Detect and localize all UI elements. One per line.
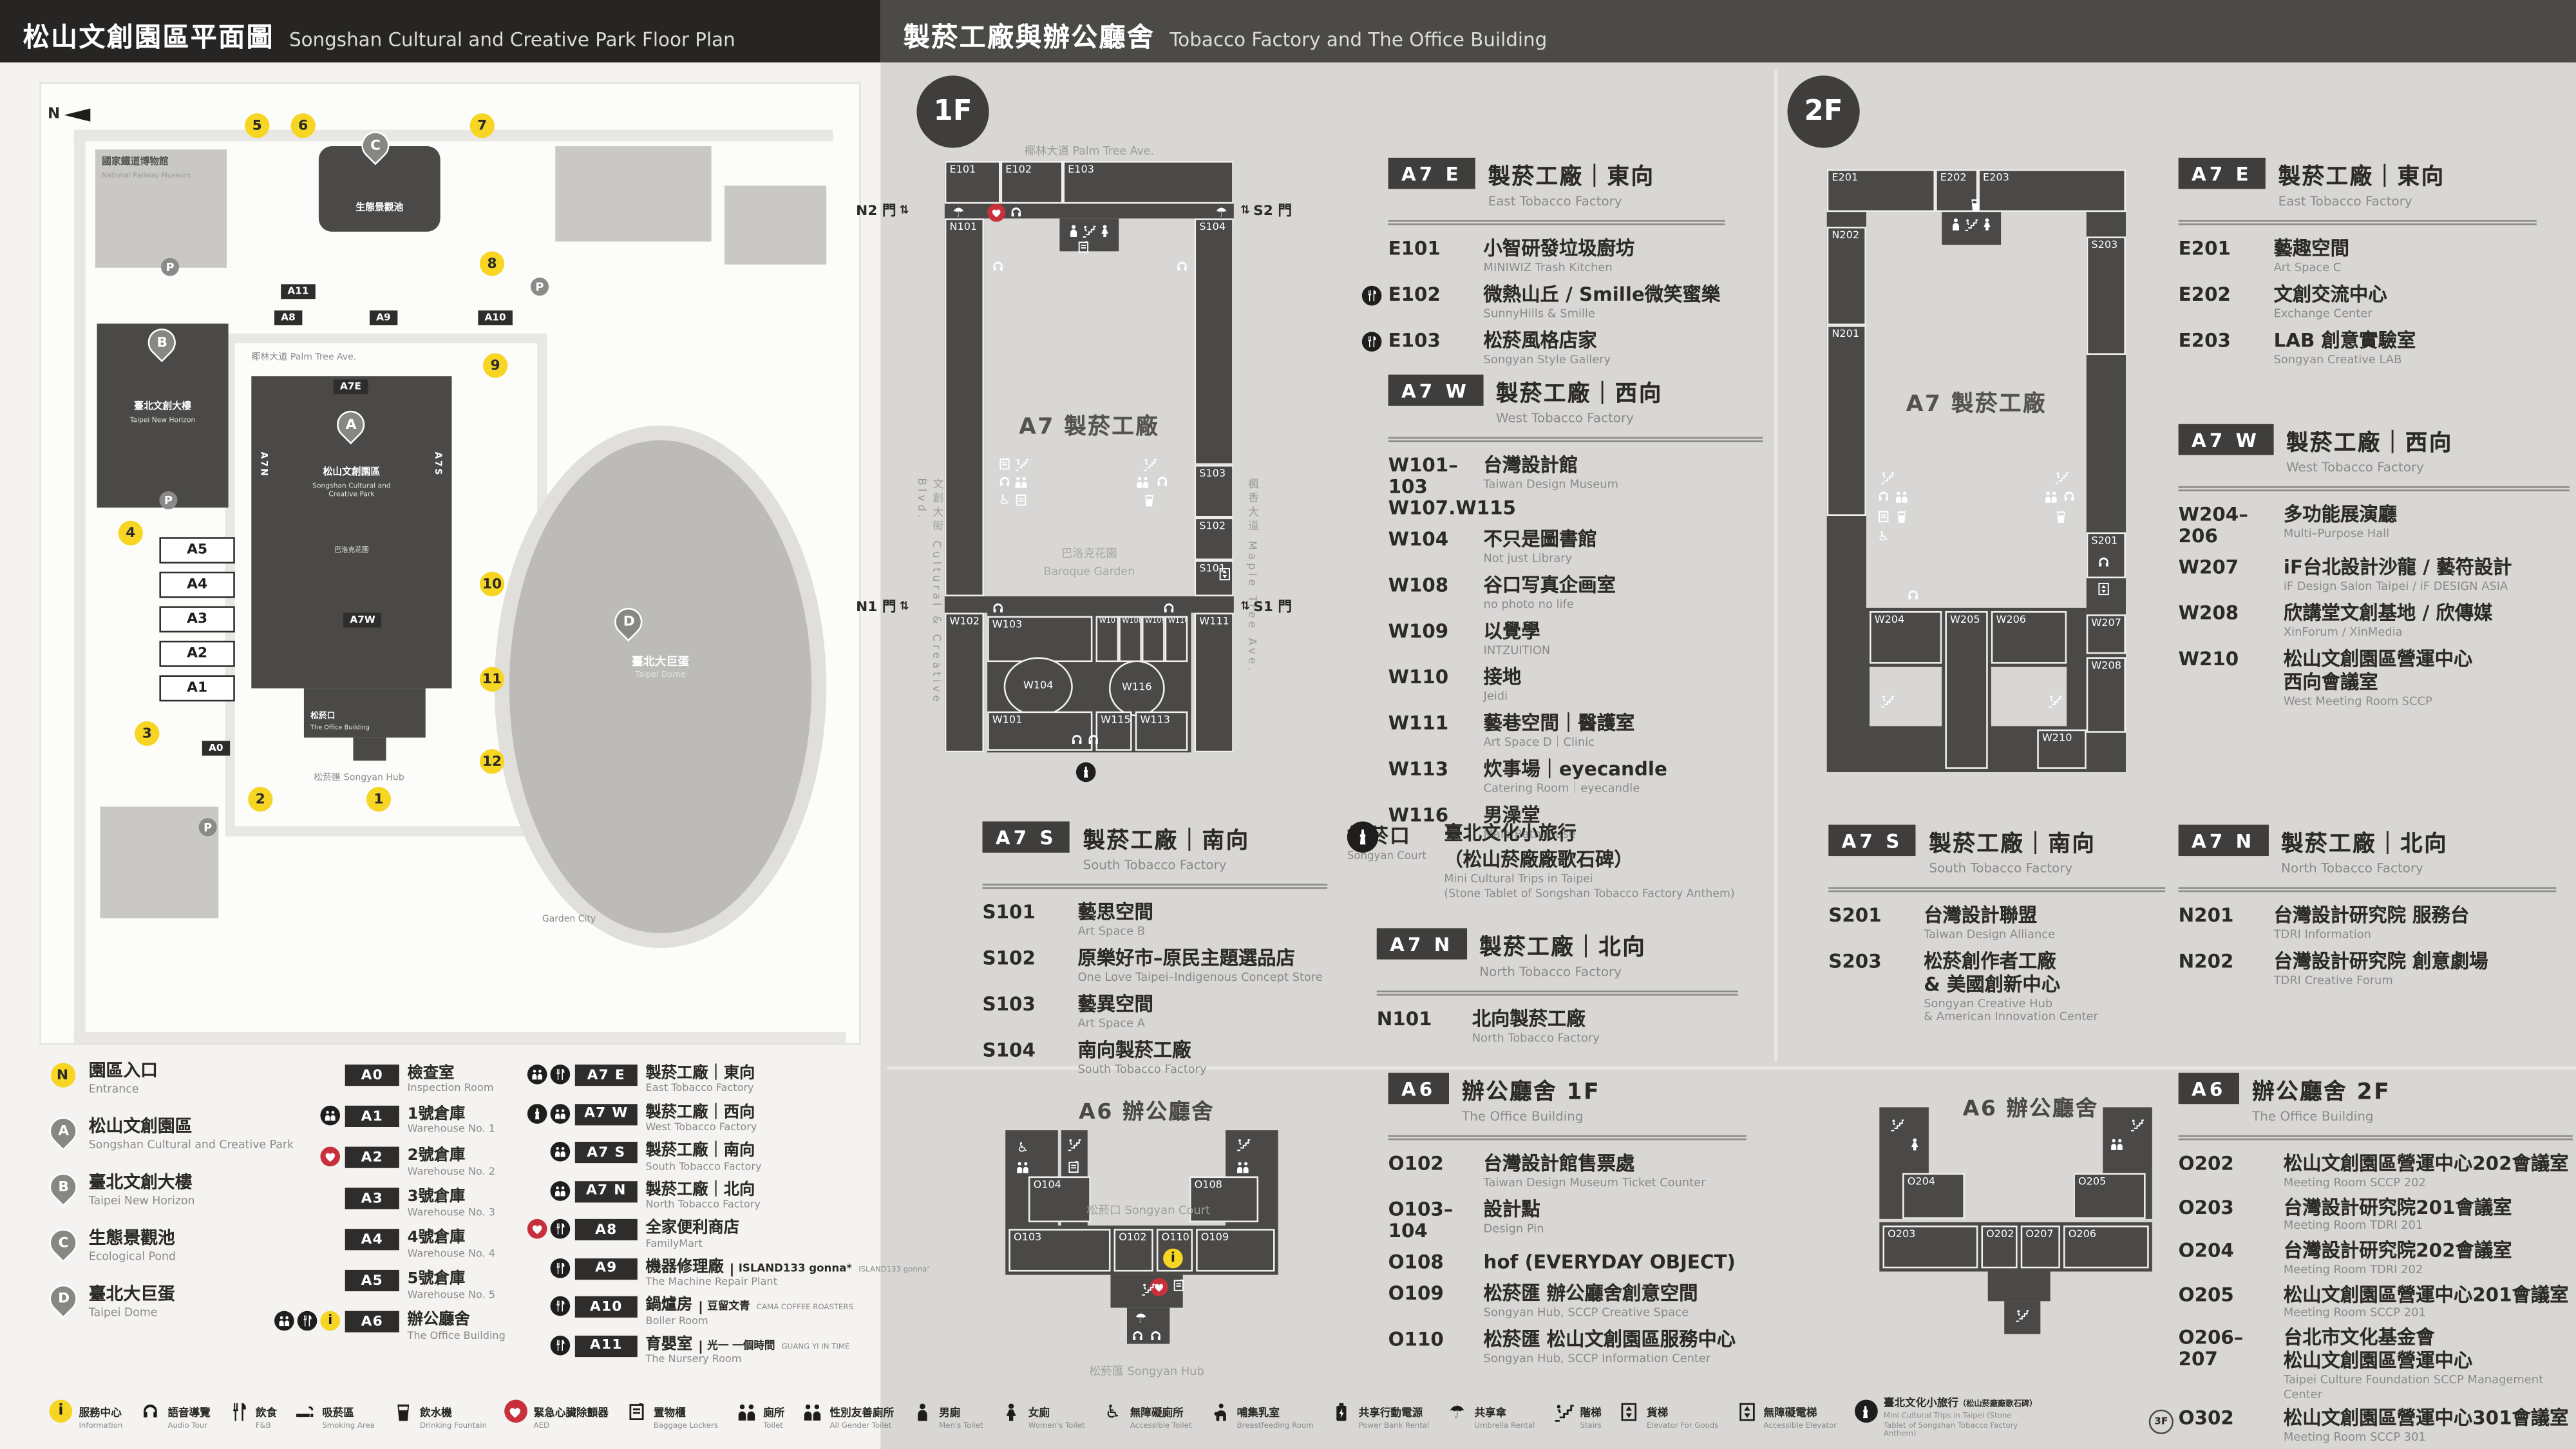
persons-icon bbox=[527, 1065, 547, 1084]
tag-a8: A8 bbox=[274, 310, 302, 325]
warehouse-box: A5 bbox=[159, 537, 234, 563]
divider bbox=[1774, 69, 1777, 1061]
room-row: O202 松山文創園區營運中心202會議室Meeting Room SCCP 2… bbox=[2179, 1153, 2573, 1191]
cup-icon bbox=[1968, 197, 1983, 212]
baroque-garden-label: 巴洛克花園 bbox=[334, 545, 368, 554]
room-row: W104 不只是圖書館Not just Library bbox=[1388, 529, 1763, 567]
stairs-icon bbox=[1879, 694, 1894, 708]
headset-icon bbox=[1155, 475, 1170, 489]
left-header: 松山文創園區平面圖 Songshan Cultural and Creative… bbox=[0, 0, 880, 62]
headset-icon bbox=[1175, 260, 1189, 274]
parking-icon: P bbox=[161, 258, 179, 276]
map-room: E103 bbox=[1063, 161, 1233, 204]
tower-icon bbox=[1854, 1399, 1877, 1423]
elevator-icon bbox=[1217, 567, 1232, 582]
legend-place-row: A 松山文創園區Songshan Cultural and Creative P… bbox=[50, 1117, 316, 1160]
stairs-icon bbox=[1235, 1137, 1250, 1151]
facility-item: 飲水機 Drinking Fountain bbox=[392, 1391, 487, 1431]
sccp-label-zh: 松山文創園區 bbox=[265, 468, 439, 481]
floor2-map: E201E202E203N202N201S203S201W204W205W206… bbox=[1807, 141, 2221, 808]
floor1-badge: 1F bbox=[916, 75, 989, 147]
section-title-en: East Tobacco Factory bbox=[1488, 194, 1655, 209]
gate-n1: N1 門⇅ bbox=[856, 596, 909, 616]
map-room: S102 bbox=[1195, 518, 1234, 560]
compass-north: N bbox=[48, 107, 90, 124]
stairs-icon bbox=[2047, 694, 2062, 708]
pin-b: B bbox=[45, 1170, 80, 1204]
headset-icon bbox=[2062, 489, 2077, 504]
entrance-number: 5 bbox=[245, 113, 269, 138]
legend-row-icons: i bbox=[274, 1312, 340, 1332]
cup-icon bbox=[392, 1401, 413, 1422]
wheelchair-icon: ♿ bbox=[1102, 1401, 1123, 1422]
ecological-pond-area: 生態景觀池 bbox=[319, 146, 440, 232]
songyan-en2: (Stone Tablet of Songshan Tobacco Factor… bbox=[1444, 887, 1734, 902]
map-room: W107 bbox=[1096, 616, 1119, 662]
office-stem-park bbox=[353, 737, 386, 761]
taipei-dome bbox=[495, 426, 826, 948]
map-room: O109 bbox=[1196, 1229, 1274, 1271]
persons-icon bbox=[1016, 1160, 1030, 1175]
legend-factory-row: A7 N 製菸工廠｜北向North Tobacco Factory bbox=[575, 1180, 874, 1213]
road-inner-n bbox=[225, 334, 547, 343]
room-row: W111 藝巷空間｜醫護室Art Space D｜Clinic bbox=[1388, 714, 1763, 751]
map-room: W210 bbox=[2037, 730, 2087, 769]
road-left bbox=[74, 130, 86, 1043]
cup-icon bbox=[1142, 493, 1157, 507]
stairs-icon bbox=[2129, 1117, 2144, 1132]
entrance-number: 9 bbox=[483, 353, 507, 377]
room-row: W113 炊事場｜eyecandleCatering Room｜eyecandl… bbox=[1388, 760, 1763, 797]
tower-icon bbox=[527, 1103, 547, 1123]
railway-museum-en: National Railway Museum bbox=[102, 171, 220, 179]
persons-icon bbox=[551, 1103, 571, 1123]
entrance-marker: N bbox=[50, 1063, 75, 1087]
stairs-icon bbox=[1140, 1282, 1155, 1296]
section-a7n-1f: A7 N 製菸工廠｜北向 North Tobacco Factory N101 … bbox=[1377, 928, 1738, 1055]
map-room: W206 bbox=[1991, 611, 2067, 664]
aed-icon bbox=[527, 1219, 547, 1239]
legend-factory-row: A7 W 製菸工廠｜西向West Tobacco Factory bbox=[575, 1103, 874, 1135]
warehouse-box: A3 bbox=[159, 606, 234, 632]
stairs-icon bbox=[2014, 1308, 2029, 1323]
room-row: O102 台灣設計館售票處Taiwan Design Museum Ticket… bbox=[1388, 1153, 1747, 1191]
stairs-icon bbox=[1066, 1137, 1081, 1151]
entrance-number: 7 bbox=[470, 113, 495, 138]
section-title-zh: 製菸工廠｜北向 bbox=[2281, 825, 2448, 858]
warehouse-box: A4 bbox=[159, 572, 234, 598]
legend-factory-row: A8 全家便利商店FamilyMart bbox=[575, 1219, 874, 1251]
dome-label: 臺北大巨蛋 Taipei Dome bbox=[495, 656, 826, 681]
headset-icon bbox=[140, 1401, 161, 1422]
food-icon bbox=[551, 1336, 571, 1356]
section-title-en: North Tobacco Factory bbox=[1479, 964, 1646, 979]
room-row: O204 台灣設計研究院202會議室Meeting Room TDRI 202 bbox=[2179, 1240, 2573, 1278]
room-row: S103 藝異空間Art Space A bbox=[982, 994, 1327, 1032]
gate-n2: N2 門⇅ bbox=[856, 200, 909, 220]
section-title-zh: 辦公廳舍 1F bbox=[1462, 1073, 1600, 1106]
facility-item: 共享行動電源 Power Bank Rental bbox=[1331, 1391, 1429, 1431]
info-icon: i bbox=[1163, 1249, 1183, 1269]
a7-factory-label: A7 製菸工廠 bbox=[984, 408, 1195, 440]
female-icon bbox=[1097, 223, 1112, 238]
park-overview-map: N 國家鐵道博物館 National Railway Museum 生態景觀池 … bbox=[39, 82, 861, 1045]
section-tag: A7 E bbox=[2179, 158, 2266, 189]
female-icon bbox=[1000, 1401, 1021, 1422]
stairs-icon bbox=[1142, 457, 1157, 471]
headset-icon bbox=[990, 601, 1005, 616]
tag-a7s-vertical: A7S bbox=[432, 452, 442, 477]
room-row: O108 hof (EVERYDAY OBJECT) bbox=[1388, 1252, 1747, 1274]
facility-item: 女廁 Women's Toilet bbox=[1000, 1391, 1084, 1431]
map-room: S104 bbox=[1195, 218, 1234, 465]
tag-a7e: A7E bbox=[334, 379, 368, 394]
food-icon bbox=[551, 1065, 571, 1084]
maple-ave-label: 楓香大道 Maple Tree Ave. bbox=[1244, 478, 1260, 741]
legend-building-row: A2 2號倉庫Warehouse No. 2 bbox=[345, 1147, 562, 1179]
songyan-court-label: 松菸口 Songyan Court bbox=[1058, 1202, 1239, 1219]
facility-item: i 服務中心 Information bbox=[50, 1391, 123, 1431]
section-a7n-2f: A7 N 製菸工廠｜北向 North Tobacco Factory N201 … bbox=[2179, 825, 2557, 998]
garden-city-label: Garden City bbox=[542, 915, 596, 925]
entrance-number: 2 bbox=[248, 787, 272, 811]
room-row: W207 iF台北設計沙龍 / 藝符設計iF Design Salon Taip… bbox=[2179, 557, 2570, 594]
tag-a0: A0 bbox=[202, 741, 230, 756]
elevator-icon bbox=[1619, 1401, 1640, 1422]
food-icon bbox=[551, 1219, 571, 1239]
section-a7w-1f: A7 W 製菸工廠｜西向 West Tobacco Factory W101–1… bbox=[1388, 375, 1763, 852]
smoke-icon bbox=[294, 1401, 316, 1422]
umbrella-icon: ☂ bbox=[1446, 1401, 1468, 1422]
map-room: O206 bbox=[2063, 1226, 2149, 1268]
stairs-icon bbox=[2054, 470, 2069, 485]
room-row: W204–206 多功能展演廳Multi–Purpose Hall bbox=[2179, 504, 2570, 547]
room-row: O103–104 設計點Design Pin bbox=[1388, 1199, 1747, 1242]
food-icon bbox=[298, 1312, 317, 1332]
room-row: S102 原樂好市–原民主題選品店One Love Taipei–Indigen… bbox=[982, 948, 1327, 985]
entrance-number: 6 bbox=[291, 113, 316, 138]
songyan-en1: Mini Cultural Trips in Taipei bbox=[1444, 873, 1734, 887]
legend-row-icons bbox=[551, 1142, 571, 1162]
screenshot-root: 松山文創園區平面圖 Songshan Cultural and Creative… bbox=[0, 0, 2576, 1449]
umbrella-icon: ☂ bbox=[951, 205, 966, 220]
office-building-park: 松菸口 The Office Building bbox=[304, 688, 426, 738]
legend-factory-row: A11 育嬰室光一 一個時間GUANG YI IN TIMEThe Nurser… bbox=[575, 1336, 874, 1368]
legend-factories: A7 E 製菸工廠｜東向East Tobacco Factory A7 W 製菸… bbox=[575, 1065, 874, 1368]
map-room: W104 bbox=[1004, 657, 1073, 716]
room-row: O205 松山文創園區營運中心201會議室Meeting Room SCCP 2… bbox=[2179, 1284, 2573, 1321]
map-room: N101 bbox=[945, 218, 984, 596]
room-row: S203 松菸創作者工廠& 美國創新中心Songyan Creative Hub… bbox=[1828, 951, 2165, 1025]
right-header: 製菸工廠與辦公廳舍 Tobacco Factory and The Office… bbox=[880, 0, 2576, 62]
info-icon: i bbox=[50, 1399, 73, 1423]
pin-d: D bbox=[45, 1282, 80, 1316]
section-title-en: South Tobacco Factory bbox=[1083, 858, 1250, 873]
room-row: N101 北向製菸工廠North Tobacco Factory bbox=[1377, 1009, 1738, 1046]
north-building-1 bbox=[555, 146, 711, 241]
map-room: S103 bbox=[1195, 465, 1234, 518]
legend-places: N 園區入口Entrance A 松山文創園區Songshan Cultural… bbox=[50, 1061, 316, 1327]
room-row: S201 台灣設計聯盟Taiwan Design Alliance bbox=[1828, 905, 2165, 943]
tnh-label-en: Taipei New Horizon bbox=[97, 415, 229, 424]
person-icon bbox=[911, 1401, 933, 1422]
legend-row-icons bbox=[551, 1336, 571, 1356]
persons-icon bbox=[320, 1106, 340, 1126]
room-row: E203 LAB 創意實驗室Songyan Creative LAB bbox=[2179, 330, 2537, 368]
entrance-number: 10 bbox=[480, 572, 504, 596]
sccp-label-en2: Creative Park bbox=[265, 489, 439, 498]
legend-row-icons bbox=[320, 1106, 340, 1126]
entrance-number: 8 bbox=[480, 251, 504, 276]
compass-label: N bbox=[48, 107, 60, 124]
map-room: S203 bbox=[2087, 236, 2126, 355]
stairs-icon bbox=[1963, 217, 1978, 232]
map-room: W115 bbox=[1096, 712, 1132, 751]
section-title-zh: 製菸工廠｜西向 bbox=[1496, 375, 1663, 408]
map-room: O203 bbox=[1882, 1226, 1978, 1268]
persons-icon bbox=[1135, 475, 1150, 489]
section-tag: A7 S bbox=[1828, 825, 1916, 856]
entrance-number: 1 bbox=[366, 787, 391, 811]
section-tag: A7 S bbox=[982, 822, 1070, 853]
locker-icon bbox=[1066, 1160, 1081, 1175]
songyan-hub-park-label: 松菸匯 Songyan Hub bbox=[314, 770, 404, 783]
section-title-zh: 辦公廳舍 2F bbox=[2252, 1073, 2391, 1106]
section-a7e-1f: A7 E 製菸工廠｜東向 East Tobacco Factory E101 小… bbox=[1388, 158, 1725, 377]
person-icon bbox=[1066, 223, 1081, 238]
section-tag: A6 bbox=[2179, 1073, 2239, 1104]
legend-place-row: B 臺北文創大樓Taipei New Horizon bbox=[50, 1173, 316, 1215]
breastfeed-icon bbox=[1209, 1401, 1230, 1422]
map-room: E203 bbox=[1978, 169, 2126, 212]
section-title-en: The Office Building bbox=[1462, 1109, 1600, 1124]
female-icon bbox=[1908, 1137, 1922, 1151]
map-room: N201 bbox=[1827, 325, 1866, 516]
section-title-zh: 製菸工廠｜西向 bbox=[2286, 424, 2453, 457]
left-title-en: Songshan Cultural and Creative Park Floo… bbox=[289, 28, 735, 51]
map-room: W116 bbox=[1109, 661, 1165, 717]
headset-icon bbox=[1086, 733, 1101, 748]
facility-item: ♿ 無障礙廁所 Accessible Toilet bbox=[1102, 1391, 1191, 1431]
facility-item: 置物櫃 Baggage Lockers bbox=[626, 1391, 718, 1431]
railway-museum-building: 國家鐵道博物館 National Railway Museum bbox=[95, 149, 227, 268]
section-title-zh: 製菸工廠｜東向 bbox=[1488, 158, 1655, 191]
persons-icon bbox=[2109, 1137, 2124, 1151]
section-title-en: North Tobacco Factory bbox=[2281, 861, 2448, 876]
legend-row-icons bbox=[551, 1180, 571, 1200]
locker-icon bbox=[1014, 493, 1028, 507]
section-title-zh: 製菸工廠｜東向 bbox=[2278, 158, 2445, 191]
food-icon bbox=[551, 1297, 571, 1317]
section-a7s-1f: A7 S 製菸工廠｜南向 South Tobacco Factory S101 … bbox=[982, 822, 1327, 1086]
headset-icon bbox=[1009, 205, 1023, 220]
pin-a: A bbox=[45, 1113, 80, 1148]
parking-icon: P bbox=[159, 491, 177, 509]
section-title-en: West Tobacco Factory bbox=[2286, 460, 2453, 475]
map-room: W102 bbox=[945, 613, 984, 753]
room-row: O110 松菸匯 松山文創園區服務中心Songyan Hub, SCCP Inf… bbox=[1388, 1330, 1747, 1367]
map-room: E101 bbox=[945, 161, 1001, 204]
room-row: W108 谷口写真企画室no photo no life bbox=[1388, 575, 1763, 612]
facility-item: 性別友善廁所 All Gender Toilet bbox=[802, 1391, 894, 1431]
a7-factory-label: A7 製菸工廠 bbox=[1866, 384, 2087, 417]
persons-icon bbox=[2043, 489, 2058, 504]
headset-icon bbox=[1876, 489, 1891, 504]
stairs-icon bbox=[1889, 1117, 1904, 1132]
room-row: E102 微熱山丘 / Smille微笑蜜樂SunnyHills & Smill… bbox=[1388, 284, 1725, 321]
food-icon bbox=[1362, 332, 1382, 352]
map-room: W110 bbox=[1165, 616, 1188, 662]
section-title-zh: 製菸工廠｜北向 bbox=[1479, 928, 1646, 961]
entrance-number: 11 bbox=[480, 667, 504, 692]
stairs-icon bbox=[1879, 470, 1894, 485]
persons-icon bbox=[1894, 489, 1909, 504]
palm-ave-label: 椰林大道 Palm Tree Ave. bbox=[915, 141, 1264, 158]
room-row: W110 接地Jeidi bbox=[1388, 667, 1763, 705]
persons-icon bbox=[1235, 1160, 1250, 1175]
legend-factory-row: A7 S 製菸工廠｜南向South Tobacco Factory bbox=[575, 1142, 874, 1174]
map-room: W103 bbox=[987, 616, 1092, 662]
section-title-en: East Tobacco Factory bbox=[2278, 194, 2445, 209]
legend-building-row: i A6 辦公廳舍The Office Building bbox=[345, 1312, 562, 1344]
food-icon bbox=[228, 1401, 249, 1422]
map-room: W109 bbox=[1142, 616, 1165, 662]
legend-row-icons bbox=[527, 1103, 570, 1123]
facility-item: 吸菸區 Smoking Area bbox=[294, 1391, 375, 1431]
room-row: W210 松山文創園區營運中心西向會議室West Meeting Room SC… bbox=[2179, 649, 2570, 709]
parking-icon: P bbox=[531, 278, 549, 296]
persons-icon bbox=[1014, 475, 1028, 489]
facility-item: 廁所 Toilet bbox=[735, 1391, 785, 1431]
headset-icon bbox=[1906, 588, 1920, 603]
tag-a10: A10 bbox=[478, 310, 513, 325]
food-icon bbox=[1362, 286, 1382, 306]
map-room: O207 bbox=[2021, 1226, 2060, 1268]
legend-place-row: C 生態景觀池Ecological Pond bbox=[50, 1229, 316, 1271]
section-tag: A7 N bbox=[2179, 825, 2268, 856]
facility-item: 男廁 Men's Toilet bbox=[911, 1391, 983, 1431]
songyan-title2: （松山菸廠廠歌石碑） bbox=[1444, 847, 1734, 873]
office-building-park-label: The Office Building bbox=[310, 724, 419, 732]
tag-a11: A11 bbox=[281, 284, 316, 299]
legend-factory-row: A7 E 製菸工廠｜東向East Tobacco Factory bbox=[575, 1065, 874, 1097]
section-tag: A7 W bbox=[2179, 424, 2273, 455]
gate-s2: ⇅S2 門 bbox=[1240, 200, 1292, 220]
umbrella-icon: ☂ bbox=[1214, 205, 1229, 220]
cultural-blvd-label: 文創大街 Cultural & Creative Blvd. bbox=[915, 478, 945, 741]
parking-icon: P bbox=[199, 818, 217, 836]
legend-row-icons bbox=[320, 1147, 340, 1167]
left-title-zh: 松山文創園區平面圖 bbox=[23, 15, 274, 54]
locker-icon bbox=[1076, 240, 1091, 254]
facility-item: 無障礙電梯 Accessible Elevator bbox=[1736, 1391, 1837, 1431]
locker-icon bbox=[1876, 509, 1891, 524]
map-room: W108 bbox=[1119, 616, 1142, 662]
entrance-number: 3 bbox=[135, 721, 159, 746]
room-row: W101–103W107.W115 台灣設計館Taiwan Design Mus… bbox=[1388, 455, 1763, 520]
pond-label-zh: 生態景觀池 bbox=[355, 204, 403, 213]
persons-icon bbox=[551, 1180, 571, 1200]
headset-icon bbox=[1148, 1329, 1163, 1344]
baroque-garden-label: 巴洛克花園Baroque Garden bbox=[984, 545, 1195, 581]
floor-plan-poster: 松山文創園區平面圖 Songshan Cultural and Creative… bbox=[0, 0, 2576, 1449]
facility-item: ☂ 共享傘 Umbrella Rental bbox=[1446, 1391, 1535, 1431]
road-inner-s bbox=[225, 826, 547, 836]
room-row: E201 藝趣空間Art Space C bbox=[2179, 238, 2537, 276]
section-title-en: West Tobacco Factory bbox=[1496, 411, 1663, 426]
cup-icon bbox=[2054, 509, 2069, 524]
section-title-en: South Tobacco Factory bbox=[1929, 861, 2096, 876]
facility-item: 緊急心臟除顫器 AED bbox=[504, 1391, 609, 1431]
locker-icon bbox=[626, 1401, 647, 1422]
section-title-zh: 製菸工廠｜南向 bbox=[1929, 825, 2096, 858]
room-row: S101 藝思空間Art Space B bbox=[982, 902, 1327, 939]
tag-a7w: A7W bbox=[343, 613, 382, 628]
headset-icon bbox=[990, 260, 1005, 274]
entrance-number: 12 bbox=[480, 749, 504, 773]
legend-row-icons bbox=[527, 1065, 570, 1084]
stairs-icon bbox=[1552, 1401, 1573, 1422]
locker-icon bbox=[1171, 1278, 1186, 1293]
persons-icon bbox=[551, 1142, 571, 1162]
palm-ave-label: 椰林大道 Palm Tree Ave. bbox=[251, 350, 356, 363]
power-icon bbox=[1331, 1401, 1352, 1422]
road-top bbox=[74, 130, 833, 142]
warehouse-box: A2 bbox=[159, 641, 234, 667]
room-row: E202 文創交流中心Exchange Center bbox=[2179, 284, 2537, 321]
facility-legend-strip: i 服務中心 Information 語音導覽 Audio Tour 飲食 F&… bbox=[0, 1374, 2576, 1449]
right-title-zh: 製菸工廠與辦公廳舍 bbox=[904, 15, 1155, 54]
tower-icon bbox=[1076, 762, 1096, 782]
facility-item: 臺北文化小旅行（松山菸廠廠歌石碑） Mini Cultural Trips in… bbox=[1854, 1382, 2037, 1441]
map-room: W205 bbox=[1945, 611, 1987, 769]
wheelchair-icon: ♿ bbox=[997, 493, 1012, 507]
room-row: O109 松菸匯 辦公廳舍創意空間Songyan Hub, SCCP Creat… bbox=[1388, 1283, 1747, 1321]
map-room: O205 bbox=[2073, 1173, 2145, 1218]
map-room: O103 bbox=[1009, 1229, 1110, 1271]
map-room: O102 bbox=[1114, 1229, 1153, 1271]
section-a7s-2f: A7 S 製菸工廠｜南向 South Tobacco Factory S201 … bbox=[1828, 825, 2165, 1035]
songyan-title1: 臺北文化小旅行 bbox=[1444, 822, 1734, 848]
road-bottom bbox=[74, 1032, 846, 1043]
section-tag: A7 E bbox=[1388, 158, 1475, 189]
tag-a9: A9 bbox=[370, 310, 397, 325]
section-a7e-2f: A7 E 製菸工廠｜東向 East Tobacco Factory E201 藝… bbox=[2179, 158, 2537, 377]
section-a7w-2f: A7 W 製菸工廠｜西向 West Tobacco Factory W204–2… bbox=[2179, 424, 2570, 717]
facility-item: 飲食 F&B bbox=[228, 1391, 278, 1431]
aed-icon bbox=[320, 1147, 340, 1167]
room-row: O203 台灣設計研究院201會議室Meeting Room TDRI 201 bbox=[2179, 1197, 2573, 1235]
stairs-icon bbox=[1014, 457, 1028, 471]
elevator-icon bbox=[2096, 582, 2111, 596]
wheelchair-icon: ♿ bbox=[1016, 1140, 1030, 1155]
room-row: W109 以覺學INTZUITION bbox=[1388, 621, 1763, 659]
map-room: E201 bbox=[1827, 169, 1935, 212]
entrance-number: 4 bbox=[118, 521, 143, 545]
umbrella-icon: ☂ bbox=[1133, 1311, 1148, 1326]
legend-building-row: A3 3號倉庫Warehouse No. 3 bbox=[345, 1188, 562, 1220]
legend-factory-row: A10 鍋爐房豆留文青CAMA COFFEE ROASTERSBoiler Ro… bbox=[575, 1297, 874, 1329]
tag-a7n-vertical: A7N bbox=[258, 452, 268, 478]
legend-row-icons bbox=[551, 1297, 571, 1317]
locker-icon bbox=[997, 457, 1012, 471]
floor2-badge: 2F bbox=[1787, 75, 1859, 147]
section-title-zh: 製菸工廠｜南向 bbox=[1083, 822, 1250, 855]
facility-item: 貨梯 Elevator For Goods bbox=[1619, 1391, 1719, 1431]
office-1f-map: A6 辦公廳舍 O104O108O103O102O110O109 松菸口 Son… bbox=[982, 1068, 1376, 1396]
section-tag: A7 W bbox=[1388, 375, 1483, 406]
female-icon bbox=[1980, 217, 1994, 232]
